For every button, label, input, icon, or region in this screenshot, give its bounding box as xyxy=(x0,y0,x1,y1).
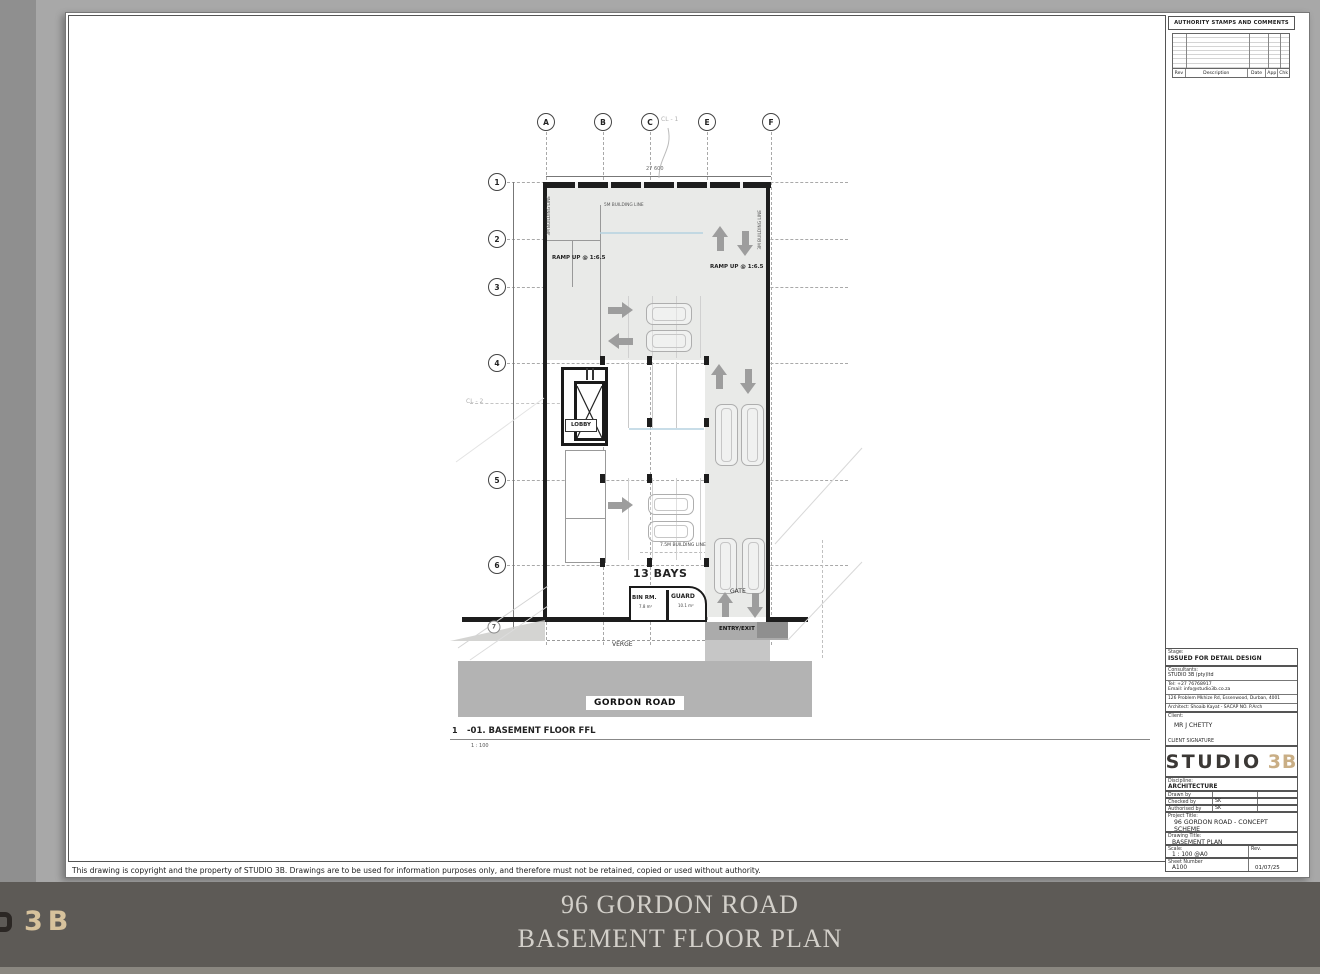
flow-arrow-right xyxy=(608,497,633,513)
car xyxy=(648,494,694,515)
wall-right xyxy=(766,182,770,622)
row-bubble-3: 3 xyxy=(488,278,506,296)
view-number: 1 xyxy=(452,727,458,735)
drawn-by-value xyxy=(1213,792,1258,797)
row-bubble-1: 1 xyxy=(488,173,506,191)
studio-logo-box: STUDIO 3B xyxy=(1165,746,1298,777)
driveway-connector-fill xyxy=(705,640,770,661)
column-block xyxy=(647,356,652,365)
grid-line-6 xyxy=(507,565,848,566)
car xyxy=(715,404,738,466)
column-block xyxy=(600,356,605,365)
flow-arrow-up xyxy=(717,592,733,617)
drawn-by-row: Drawn by xyxy=(1165,791,1298,798)
sheet-frame xyxy=(68,15,1298,862)
grid-line-5 xyxy=(507,480,848,481)
ramp-divider xyxy=(600,205,601,361)
entry-exit-label: ENTRY/EXIT xyxy=(719,627,755,633)
stair-hatch xyxy=(592,368,594,380)
studio-3b-footer-logo: 3B xyxy=(0,906,73,937)
row-bubble-4: 4 xyxy=(488,354,506,372)
authorised-by-row: Authorised by SK xyxy=(1165,805,1298,812)
revision-table-header: Rev Description Date App Chk xyxy=(1173,68,1289,77)
footer-title: 96 GORDON ROAD BASEMENT FLOOR PLAN xyxy=(0,888,1320,956)
stair-hatch xyxy=(586,368,588,380)
car xyxy=(714,538,737,594)
sheet-date-value: 01/07/25 xyxy=(1253,865,1282,871)
logo-o-glyph xyxy=(0,912,12,932)
consultants-name: STUDIO 3B (pty)ltd xyxy=(1166,673,1297,678)
row-bubble-7: 7 xyxy=(488,621,501,634)
project-title-section: Project Title: 96 GORDON ROAD - CONCEPT … xyxy=(1165,812,1298,832)
sheet-number-row: Sheet Number A100 01/07/25 xyxy=(1165,858,1298,872)
guard-room-divider xyxy=(666,590,669,622)
stage-section: Stage: ISSUED FOR DETAIL DESIGN xyxy=(1165,648,1298,666)
client-name: MR J CHETTY xyxy=(1172,722,1297,729)
authority-stamps-title: AUTHORITY STAMPS AND COMMENTS xyxy=(1168,16,1295,30)
overall-dimension: 27 600 xyxy=(646,167,664,172)
bay-line xyxy=(628,362,629,428)
studio-logo-3b: 3B xyxy=(1268,751,1298,773)
entry-dark-square xyxy=(757,622,788,638)
bin-room-area: 7.8 m² xyxy=(639,605,652,609)
client-section: Client: MR J CHETTY CLIENT SIGNATURE xyxy=(1165,712,1298,746)
flow-arrow-down xyxy=(737,231,753,256)
boundary-wall-stub xyxy=(770,617,808,622)
footer-bottom-strip xyxy=(0,967,1320,974)
checked-by-value: SK xyxy=(1213,799,1258,804)
client-label: Client: xyxy=(1166,713,1297,719)
date-col-header: Date xyxy=(1248,69,1267,77)
ramp-edge xyxy=(547,240,600,241)
footer-title-line1: 96 GORDON ROAD xyxy=(40,888,1320,922)
car xyxy=(648,521,694,542)
column-block xyxy=(704,356,709,365)
project-title-value: 96 GORDON ROAD - CONCEPT SCHEME xyxy=(1172,819,1286,833)
road-label: GORDON ROAD xyxy=(586,696,684,710)
grid-line-f xyxy=(771,132,772,645)
ramp-label-left: RAMP UP @ 1:6.5 xyxy=(552,256,606,262)
consultant-address: 126 Problem Mkhize Rd, Essenwood, Durban… xyxy=(1166,696,1297,701)
grid-bubble-e: E xyxy=(698,113,716,131)
flow-arrow-down xyxy=(740,369,756,394)
page: 27 600 LOBBY xyxy=(0,0,1320,974)
authorised-by-label: Authorised by xyxy=(1166,806,1213,811)
column-block xyxy=(704,418,709,427)
grid-bubble-b: B xyxy=(594,113,612,131)
ramp-label-right: RAMP UP @ 1:6.5 xyxy=(710,265,764,271)
rev-cell: Rev. xyxy=(1249,846,1263,857)
building-line-5m: 5M BUILDING LINE xyxy=(604,204,644,208)
site-line-right xyxy=(822,540,823,658)
grid-bubble-c: C xyxy=(641,113,659,131)
bay-line xyxy=(628,478,629,560)
flow-arrow-down xyxy=(747,593,763,618)
sheet-number-cell: Sheet Number A100 xyxy=(1166,859,1249,871)
app-col-header: App xyxy=(1266,69,1278,77)
flow-arrow-up xyxy=(711,364,727,389)
building-line-3m-left: 3M BUILDING LINE xyxy=(548,196,552,236)
left-dimension-line xyxy=(513,182,514,629)
column-block xyxy=(647,418,652,427)
architect-line: Architect: Shoaib Kayat - SACAP NO. P.Ar… xyxy=(1166,705,1297,710)
view-title: -01. BASEMENT FLOOR FFL xyxy=(467,727,596,736)
checked-by-label: Checked by xyxy=(1166,799,1213,804)
bay-line xyxy=(700,296,701,358)
discipline-section: Discipline: ARCHITECTURE xyxy=(1165,777,1298,791)
row-bubble-5: 5 xyxy=(488,471,506,489)
grid-line-4 xyxy=(507,363,848,364)
lift-shaft xyxy=(574,381,605,441)
lobby-text: LOBBY xyxy=(571,423,591,429)
column-block xyxy=(600,558,605,567)
authorised-by-value: SK xyxy=(1213,806,1258,811)
car xyxy=(742,538,765,594)
consultants-section: Consultants: STUDIO 3B (pty)ltd Tel: +27… xyxy=(1165,666,1298,712)
verge-label: VERGE xyxy=(612,642,633,648)
column-block xyxy=(704,474,709,483)
checked-by-row: Checked by SK xyxy=(1165,798,1298,805)
flow-arrow-left xyxy=(608,333,633,349)
bays-label: 13 BAYS xyxy=(633,568,687,579)
wall-left xyxy=(543,182,547,622)
road-label-wrap: GORDON ROAD xyxy=(458,690,812,709)
flow-arrow-right xyxy=(608,302,633,318)
drawn-by-label: Drawn by xyxy=(1166,792,1213,797)
discipline-value: ARCHITECTURE xyxy=(1166,784,1297,790)
car xyxy=(646,303,692,325)
bay-line xyxy=(652,362,653,428)
rev-col-header: Rev xyxy=(1173,69,1186,77)
grid-bubble-a: A xyxy=(537,113,555,131)
lobby-label: LOBBY xyxy=(565,419,597,432)
bay-line xyxy=(676,362,677,428)
view-title-rule xyxy=(450,739,1150,740)
revision-table: Rev Description Date App Chk xyxy=(1172,33,1290,78)
wall-top xyxy=(545,182,771,188)
drawing-title-section: Drawing Title: BASEMENT PLAN xyxy=(1165,832,1298,845)
ramp-wall xyxy=(572,240,573,287)
guard-room-area: 10.1 m² xyxy=(678,604,694,608)
footer-band: 96 GORDON ROAD BASEMENT FLOOR PLAN 3B xyxy=(0,882,1320,974)
stage-value: ISSUED FOR DETAIL DESIGN xyxy=(1166,655,1297,662)
car xyxy=(646,330,692,352)
left-shade-strip xyxy=(0,0,36,882)
footer-title-line2: BASEMENT FLOOR PLAN xyxy=(40,922,1320,956)
column-block xyxy=(647,558,652,567)
logo-3b-glyph: 3B xyxy=(24,906,73,937)
store-room xyxy=(565,450,606,563)
building-line-3m-right: 3M BUILDING LINE xyxy=(759,210,763,250)
scale-cell: Scale: 1 : 100 @A0 xyxy=(1166,846,1249,857)
flow-arrow-up xyxy=(712,226,728,251)
top-dimension-line xyxy=(546,176,771,177)
grid-line-cl2 xyxy=(470,403,565,404)
client-signature-label: CLIENT SIGNATURE xyxy=(1166,738,1216,744)
row-bubble-6: 6 xyxy=(488,556,506,574)
column-block xyxy=(647,474,652,483)
consultant-email: Email: info@studio3b.co.za xyxy=(1166,687,1297,692)
car xyxy=(741,404,764,466)
scale-row: Scale: 1 : 100 @A0 Rev. xyxy=(1165,845,1298,858)
column-block xyxy=(600,474,605,483)
row-bubble-2: 2 xyxy=(488,230,506,248)
centerline-label-2: CL - 2 xyxy=(466,399,483,405)
chk-col-header: Chk xyxy=(1278,69,1289,77)
grid-bubble-f: F xyxy=(762,113,780,131)
sheet-number-value: A100 xyxy=(1170,865,1189,871)
building-line-75: 7.5M BUILDING LINE xyxy=(660,544,706,549)
bin-room-label: BIN RM. xyxy=(632,596,657,602)
bay-line xyxy=(652,478,653,560)
store-room-divider xyxy=(565,518,606,519)
centerline-label-1: CL - 1 xyxy=(661,117,678,123)
gate-label: GATE xyxy=(730,589,746,595)
studio-logo-text: STUDIO xyxy=(1166,751,1262,773)
guard-room-label: GUARD xyxy=(671,594,695,600)
column-block xyxy=(704,558,709,567)
view-scale: 1 : 100 xyxy=(471,744,489,749)
building-line-75-dash xyxy=(640,552,707,553)
description-col-header: Description xyxy=(1186,69,1248,77)
copyright-note: This drawing is copyright and the proper… xyxy=(72,866,761,875)
